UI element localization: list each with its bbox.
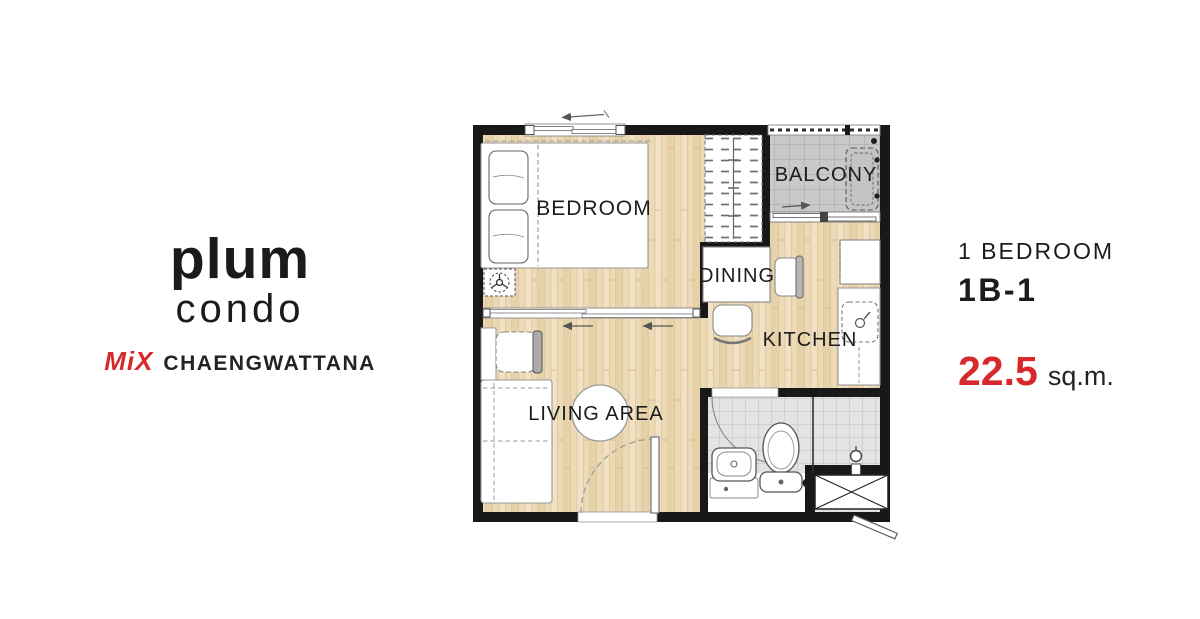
- unit-area-unit: sq.m.: [1048, 361, 1114, 391]
- unit-area-value: 22.5: [958, 348, 1038, 394]
- brand-name-condo: condo: [100, 288, 380, 330]
- unit-type: 1 BEDROOM: [958, 238, 1114, 265]
- room-label-dining: DINING: [699, 265, 775, 287]
- unit-area: 22.5sq.m.: [958, 348, 1114, 395]
- side-table: [481, 328, 496, 380]
- room-label-balcony: BALCONY: [775, 164, 878, 186]
- project-name: MiX: [104, 346, 153, 376]
- window-swing-arrow-icon: [562, 111, 609, 118]
- fridge: [840, 240, 880, 284]
- brand-logo: plum condo MiXCHAENGWATTANA: [100, 230, 380, 377]
- armchair: [496, 331, 542, 373]
- dining-chair: [775, 256, 803, 298]
- wardrobe: [705, 135, 762, 242]
- room-label-bedroom: BEDROOM: [536, 197, 652, 220]
- bedroom-window: [525, 124, 625, 136]
- room-label-kitchen: KITCHEN: [763, 329, 858, 351]
- room-label-living-area: LIVING AREA: [528, 403, 664, 425]
- floorplan: BEDROOM BALCONY DINING KITCHEN LIVING AR…: [460, 100, 910, 550]
- ceiling-fan-icon: [484, 269, 515, 296]
- shaft: [815, 475, 888, 509]
- sofa: [481, 380, 552, 503]
- project-line: MiXCHAENGWATTANA: [100, 346, 380, 377]
- sliding-partition: [483, 308, 700, 318]
- bathroom-sink: [710, 448, 758, 498]
- balcony-railing: [768, 125, 880, 135]
- brand-name-plum: plum: [100, 230, 380, 288]
- unit-info: 1 BEDROOM 1B-1 22.5sq.m.: [958, 238, 1114, 395]
- project-location: CHAENGWATTANA: [163, 352, 375, 375]
- unit-code: 1B-1: [958, 272, 1114, 309]
- balcony-sliding-door: [770, 212, 880, 222]
